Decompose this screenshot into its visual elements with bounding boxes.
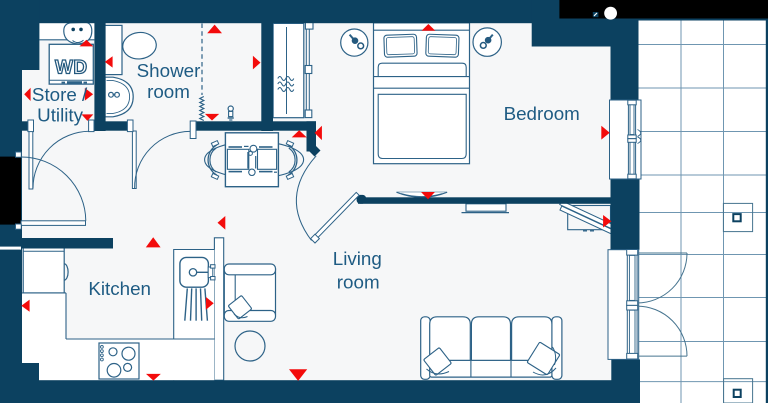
svg-text:room: room (147, 81, 190, 102)
svg-text:Store /: Store / (32, 84, 88, 105)
svg-text:Kitchen: Kitchen (88, 278, 151, 299)
svg-text:WD: WD (55, 58, 88, 79)
svg-text:Utility: Utility (37, 105, 84, 126)
svg-text:Bedroom: Bedroom (504, 103, 580, 124)
svg-text:Shower: Shower (137, 60, 201, 81)
svg-text:room: room (337, 271, 380, 292)
svg-text:Living: Living (333, 248, 382, 269)
